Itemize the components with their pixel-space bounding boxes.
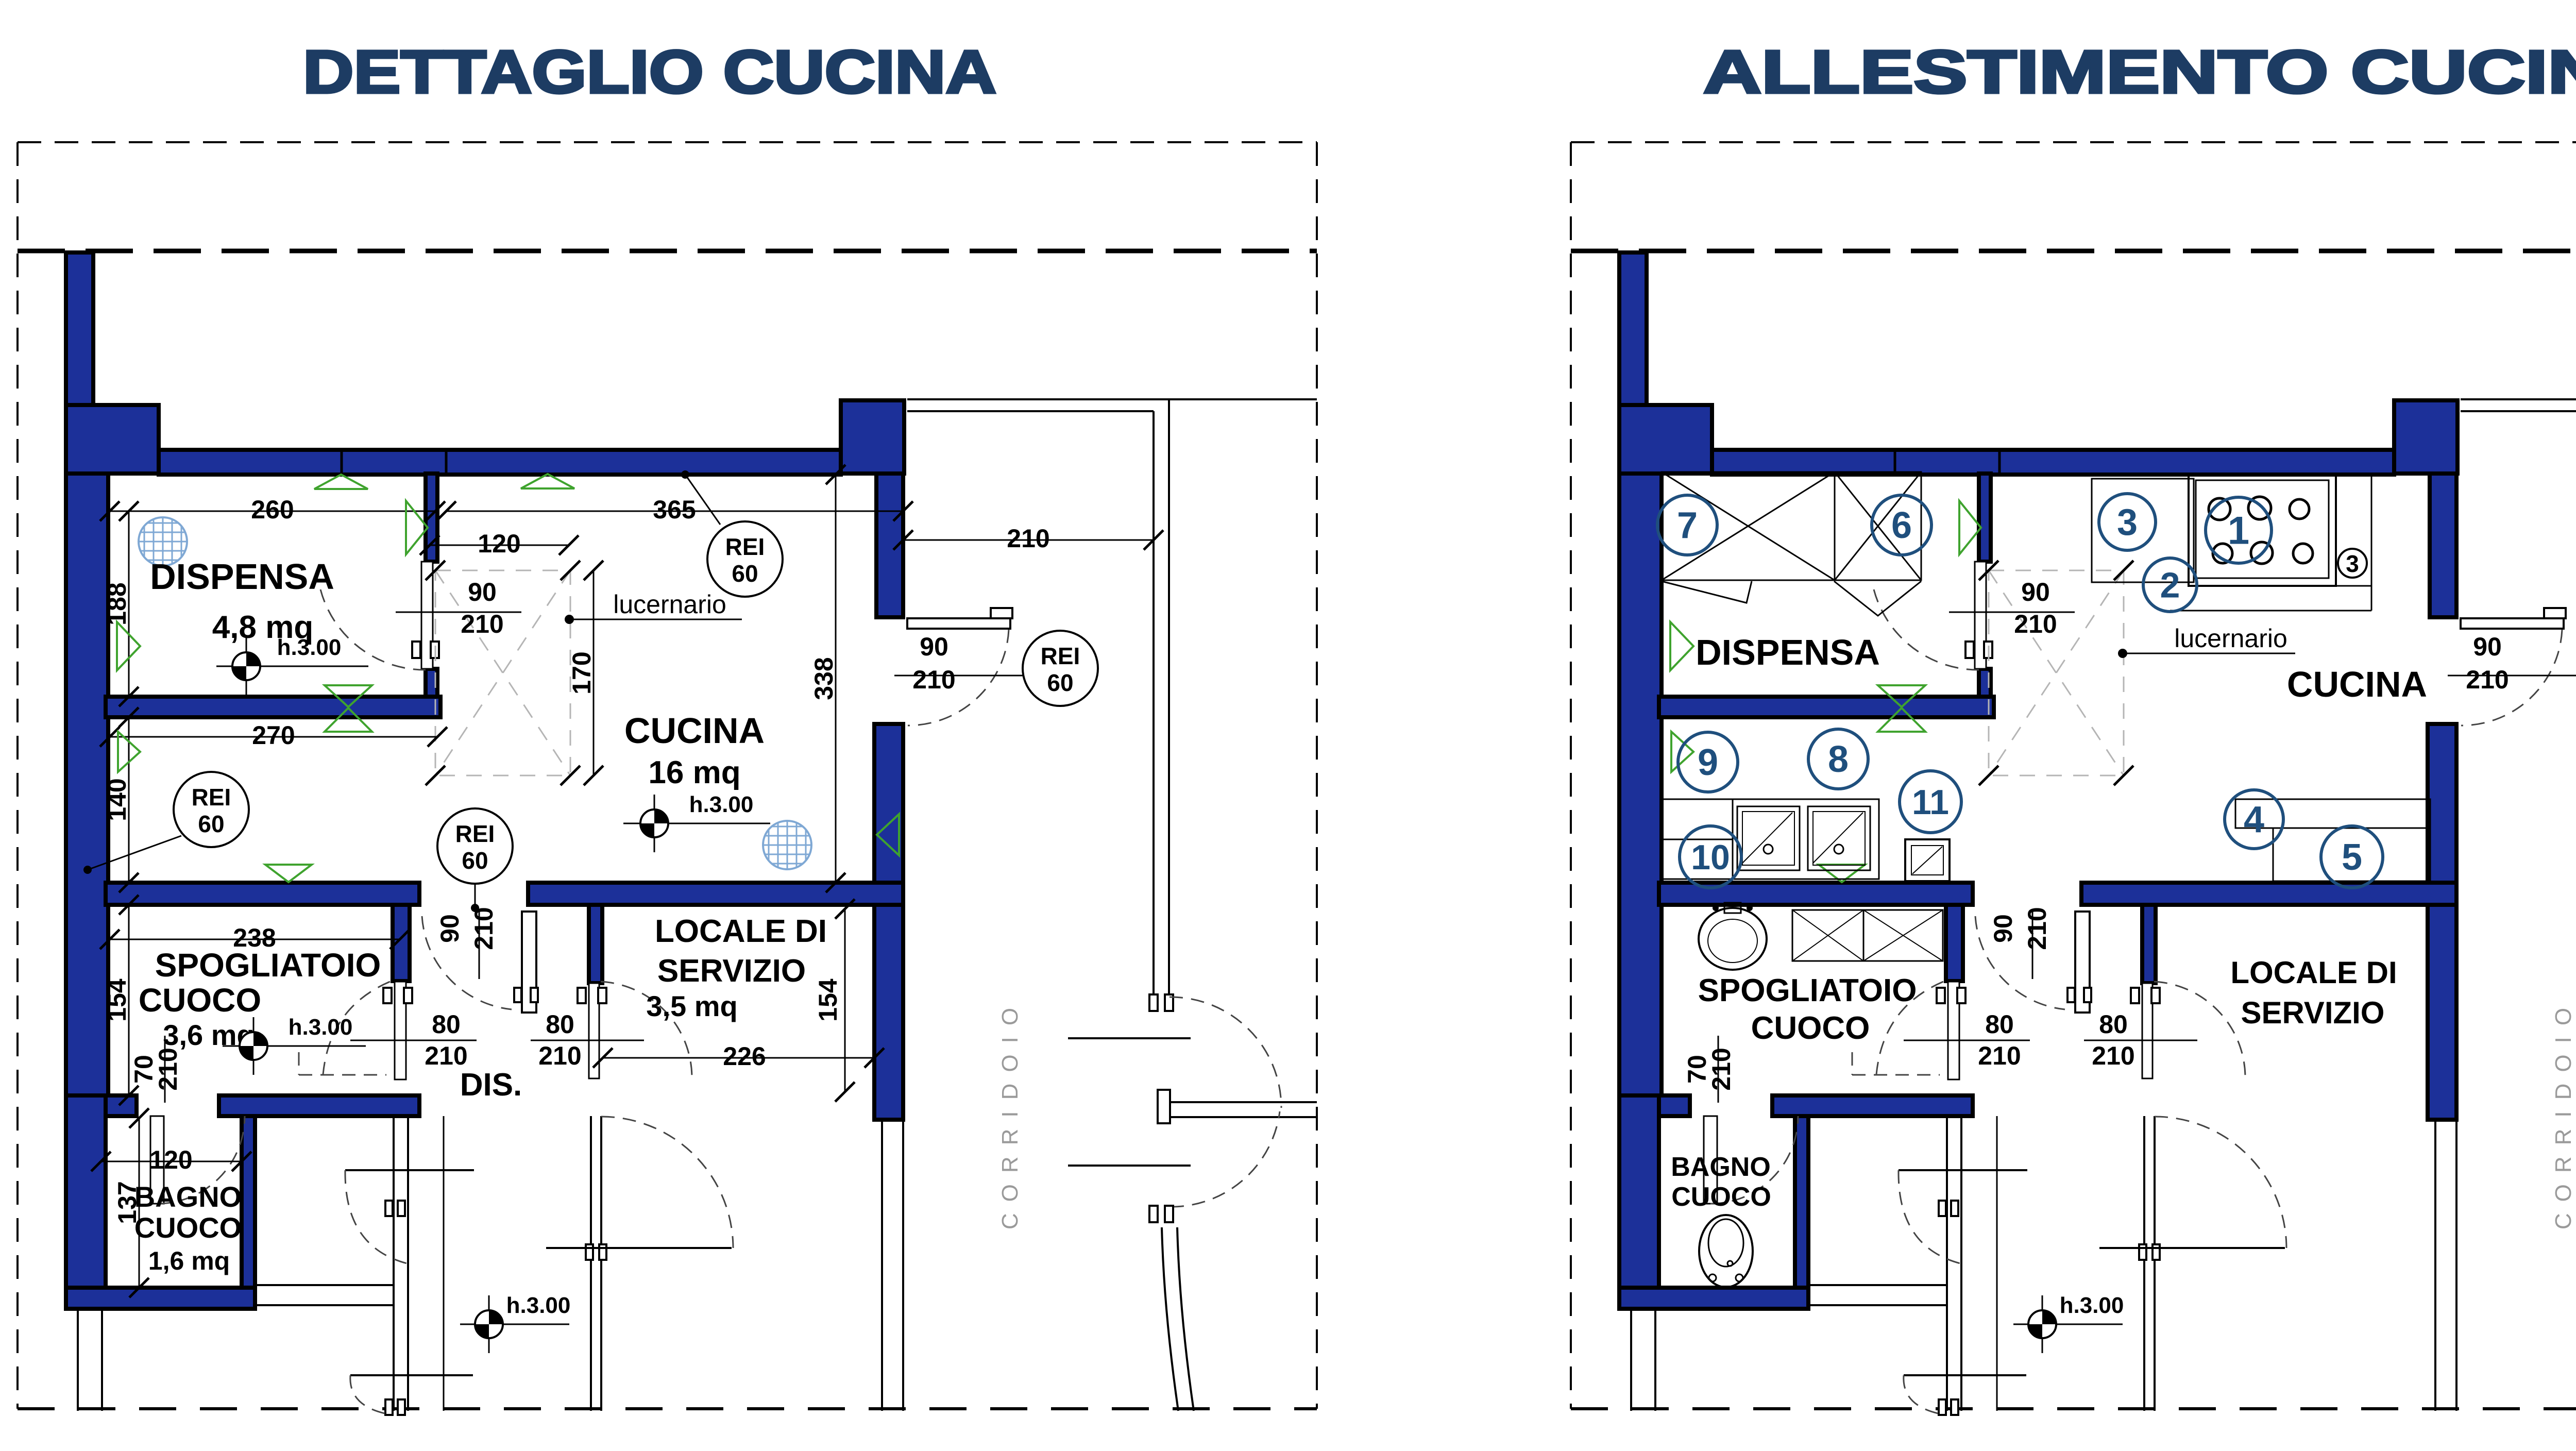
svg-text:h.3.00: h.3.00	[689, 792, 754, 817]
svg-text:7: 7	[1677, 505, 1698, 546]
svg-text:CUCINA: CUCINA	[624, 711, 765, 751]
svg-text:210: 210	[2092, 1041, 2134, 1070]
svg-text:8: 8	[1828, 739, 1849, 780]
svg-text:DISPENSA: DISPENSA	[1696, 632, 1880, 672]
svg-text:16 mq: 16 mq	[648, 755, 740, 790]
svg-text:BAGNO: BAGNO	[134, 1180, 242, 1213]
svg-text:CUOCO: CUOCO	[1751, 1010, 1870, 1046]
svg-text:CUOCO: CUOCO	[1671, 1182, 1771, 1212]
svg-text:90: 90	[468, 578, 497, 606]
svg-text:lucernario: lucernario	[2174, 624, 2287, 653]
svg-text:154: 154	[103, 978, 131, 1022]
svg-text:3: 3	[2346, 550, 2359, 577]
svg-text:120: 120	[478, 529, 520, 558]
svg-text:210: 210	[1978, 1041, 2021, 1070]
svg-text:210: 210	[461, 610, 503, 638]
svg-text:60: 60	[1047, 669, 1073, 696]
svg-text:210: 210	[425, 1041, 467, 1070]
svg-text:SERVIZIO: SERVIZIO	[2241, 996, 2385, 1030]
svg-text:CUOCO: CUOCO	[139, 982, 261, 1019]
svg-text:6: 6	[1891, 505, 1912, 546]
svg-text:LOCALE DI: LOCALE DI	[2230, 955, 2397, 990]
svg-text:210: 210	[2014, 610, 2057, 638]
svg-text:ALLESTIMENTO CUCINA: ALLESTIMENTO CUCINA	[1703, 38, 2576, 106]
svg-text:REI: REI	[1041, 643, 1080, 669]
svg-text:1: 1	[2228, 509, 2249, 553]
svg-text:90: 90	[1989, 914, 2018, 943]
svg-text:BAGNO: BAGNO	[1671, 1152, 1771, 1182]
svg-text:CUCINA: CUCINA	[2287, 664, 2427, 704]
svg-text:2: 2	[2160, 565, 2180, 605]
svg-text:h.3.00: h.3.00	[506, 1293, 571, 1318]
svg-text:170: 170	[567, 651, 596, 694]
svg-text:210: 210	[538, 1041, 581, 1070]
svg-text:80: 80	[2099, 1010, 2128, 1039]
svg-text:10: 10	[1691, 838, 1730, 877]
svg-text:SPOGLIATOIO: SPOGLIATOIO	[1698, 973, 1917, 1008]
svg-text:188: 188	[103, 582, 131, 625]
svg-text:11: 11	[1912, 783, 1949, 822]
svg-text:260: 260	[251, 495, 294, 524]
svg-text:60: 60	[198, 811, 224, 837]
svg-text:210: 210	[469, 907, 498, 950]
svg-text:3,5 mq: 3,5 mq	[646, 990, 737, 1022]
svg-text:90: 90	[2473, 632, 2502, 661]
svg-text:SERVIZIO: SERVIZIO	[657, 953, 806, 989]
svg-text:120: 120	[149, 1145, 192, 1174]
svg-text:80: 80	[432, 1010, 461, 1039]
svg-text:DISPENSA: DISPENSA	[150, 556, 334, 597]
svg-text:365: 365	[653, 495, 696, 524]
svg-text:h.3.00: h.3.00	[289, 1015, 353, 1040]
svg-text:lucernario: lucernario	[613, 590, 726, 619]
svg-text:5: 5	[2342, 837, 2362, 878]
svg-text:210: 210	[2023, 907, 2052, 950]
svg-text:210: 210	[1007, 524, 1049, 553]
svg-text:CORRIDOIO: CORRIDOIO	[2551, 997, 2576, 1229]
svg-text:210: 210	[2466, 665, 2509, 694]
svg-text:REI: REI	[192, 784, 231, 811]
svg-text:REI: REI	[455, 820, 495, 847]
svg-text:60: 60	[732, 560, 758, 587]
svg-text:DETTAGLIO CUCINA: DETTAGLIO CUCINA	[303, 38, 996, 106]
svg-text:90: 90	[920, 632, 948, 661]
svg-text:4: 4	[2244, 799, 2264, 840]
svg-text:210: 210	[912, 665, 955, 694]
svg-text:154: 154	[814, 978, 842, 1022]
svg-text:CORRIDOIO: CORRIDOIO	[997, 997, 1023, 1229]
svg-text:140: 140	[103, 778, 131, 821]
svg-text:210: 210	[154, 1048, 182, 1090]
svg-text:SPOGLIATOIO: SPOGLIATOIO	[155, 947, 381, 984]
svg-text:3: 3	[2117, 502, 2138, 543]
svg-text:210: 210	[1707, 1048, 1736, 1090]
svg-text:270: 270	[252, 721, 295, 750]
svg-text:80: 80	[546, 1010, 574, 1039]
svg-text:338: 338	[809, 657, 838, 700]
svg-text:9: 9	[1698, 742, 1718, 783]
svg-text:CUOCO: CUOCO	[134, 1211, 242, 1244]
svg-text:1,6 mq: 1,6 mq	[148, 1246, 230, 1275]
svg-text:90: 90	[2021, 578, 2050, 606]
svg-text:60: 60	[462, 847, 488, 874]
svg-text:h.3.00: h.3.00	[2060, 1293, 2124, 1318]
svg-text:REI: REI	[725, 533, 765, 560]
svg-text:90: 90	[435, 914, 464, 943]
svg-text:80: 80	[1985, 1010, 2014, 1039]
svg-text:LOCALE DI: LOCALE DI	[655, 914, 827, 949]
svg-text:226: 226	[723, 1042, 766, 1071]
svg-text:DIS.: DIS.	[460, 1067, 522, 1103]
svg-text:h.3.00: h.3.00	[277, 635, 342, 660]
